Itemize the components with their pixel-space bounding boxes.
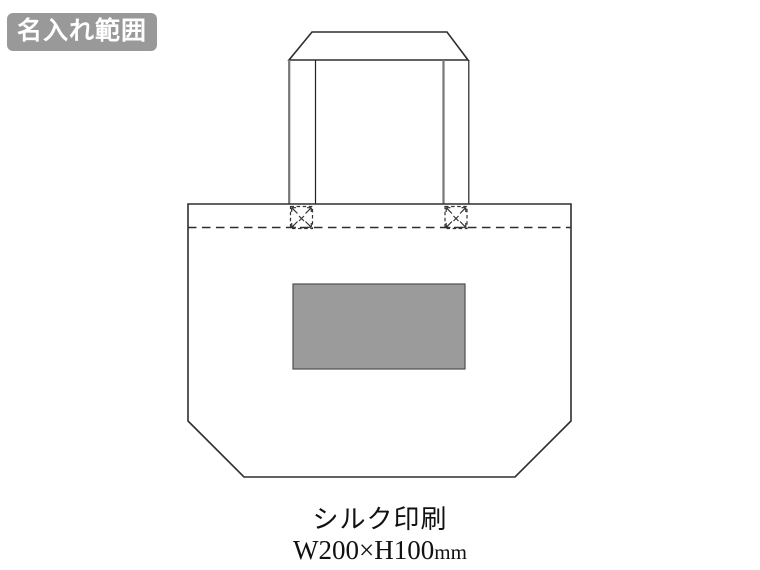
print-size-label: W200×H100mm (0, 535, 760, 566)
print-size-unit: mm (434, 540, 467, 564)
handle-top (289, 32, 468, 60)
print-area-rect (293, 284, 465, 369)
tote-bag-diagram (0, 0, 760, 570)
print-area-guide-page: 名入れ範囲 シルク印刷 (0, 0, 760, 570)
print-method-label: シルク印刷 (0, 504, 760, 535)
caption: シルク印刷 W200×H100mm (0, 504, 760, 566)
print-size-value: W200×H100 (293, 535, 434, 565)
